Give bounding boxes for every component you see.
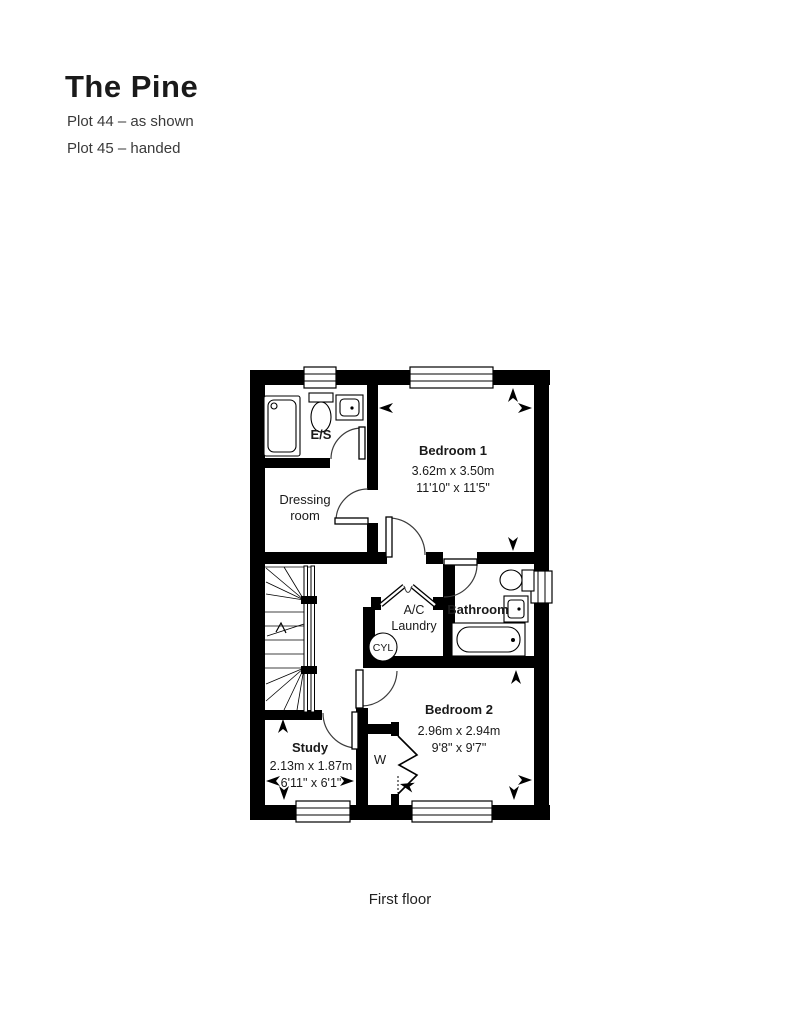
bedroom2-label: Bedroom 2 bbox=[425, 702, 493, 717]
bedroom1-label: Bedroom 1 bbox=[419, 443, 487, 458]
bedroom2-imperial-dims: 9'8" x 9'7" bbox=[432, 741, 487, 755]
study-width-arrow-right bbox=[340, 776, 354, 786]
page-title: The Pine bbox=[65, 69, 198, 104]
ensuite-door bbox=[331, 427, 365, 459]
ensuite-window bbox=[304, 367, 336, 388]
cylinder-label: CYL bbox=[373, 642, 394, 654]
study-window bbox=[296, 801, 350, 822]
study-door bbox=[323, 712, 358, 749]
bathroom-label: Bathroom bbox=[447, 602, 508, 617]
dressing-room-door bbox=[335, 489, 368, 524]
study-imperial-dims: 6'11" x 6'1" bbox=[281, 776, 342, 790]
bedroom2-metric-dims: 2.96m x 2.94m bbox=[418, 724, 501, 738]
shower-head bbox=[271, 403, 277, 409]
bedroom2-window bbox=[412, 801, 492, 822]
laundry-label-line2: Laundry bbox=[391, 619, 437, 633]
cylinder: CYL bbox=[369, 633, 397, 661]
bedroom1-metric-dims: 3.62m x 3.50m bbox=[412, 464, 495, 478]
bedroom1-depth-arrow-up bbox=[508, 388, 518, 402]
bedroom2-depth-arrow-up bbox=[511, 670, 521, 684]
floor-caption: First floor bbox=[369, 891, 432, 908]
bedroom1-window bbox=[410, 367, 493, 388]
ensuite-label: E/S bbox=[311, 427, 332, 442]
header: The Pine Plot 44 – as shown Plot 45 – ha… bbox=[65, 69, 198, 157]
study-depth-arrow-up bbox=[278, 719, 288, 733]
stair-handrail bbox=[304, 566, 308, 712]
laundry-label-line1: A/C bbox=[404, 603, 425, 617]
dressing-room-label-line2: room bbox=[290, 508, 320, 523]
study-width-arrow-left bbox=[266, 776, 280, 786]
plot-45-line: Plot 45 – handed bbox=[67, 140, 180, 157]
bedroom2-width-arrow-right bbox=[518, 775, 532, 785]
dressing-room-label-line1: Dressing bbox=[279, 492, 330, 507]
bedroom2-depth-arrow-down bbox=[509, 786, 519, 800]
bedroom1-door bbox=[386, 517, 425, 557]
bathroom-toilet-cistern bbox=[522, 570, 534, 591]
floorplan-canvas: The Pine Plot 44 – as shown Plot 45 – ha… bbox=[0, 0, 800, 1036]
ensuite-toilet-cistern bbox=[309, 393, 333, 402]
plot-44-line: Plot 44 – as shown bbox=[67, 113, 194, 130]
bathroom-toilet bbox=[500, 570, 522, 590]
bedroom1-width-arrow-left bbox=[379, 403, 393, 413]
bedroom1-depth-arrow-down bbox=[508, 537, 518, 551]
bedroom2-door bbox=[356, 670, 397, 708]
ensuite-fixtures bbox=[264, 393, 363, 456]
study-metric-dims: 2.13m x 1.87m bbox=[270, 759, 353, 773]
bedroom1-imperial-dims: 11'10" x 11'5" bbox=[416, 481, 490, 495]
bedroom1-width-arrow-right bbox=[518, 403, 532, 413]
wardrobe-label: W bbox=[374, 752, 387, 767]
staircase bbox=[265, 566, 317, 712]
study-label: Study bbox=[292, 740, 329, 755]
floor-plan: CYL E/S Dressing room Bedroom 1 3.62m x … bbox=[250, 367, 552, 908]
floorplan-page: The Pine Plot 44 – as shown Plot 45 – ha… bbox=[0, 0, 800, 1036]
